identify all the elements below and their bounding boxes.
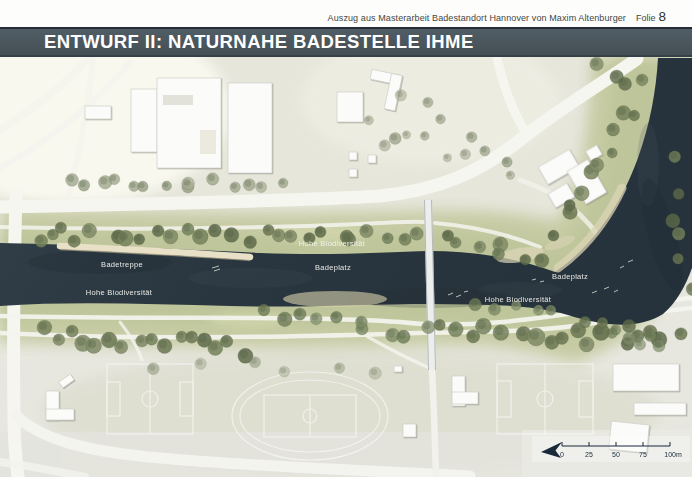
tree-shade — [412, 228, 419, 235]
tree-shade — [391, 134, 398, 141]
tree-shade — [468, 133, 474, 139]
map-annotation-label: Hohe Biodiversität — [86, 288, 153, 297]
header-bar: Auszug aus Masterarbeit Badestandort Han… — [0, 0, 692, 27]
map-annotation-label: Hohe Biodiversität — [485, 295, 552, 304]
source-note: Auszug aus Masterarbeit Badestandort Han… — [328, 13, 626, 23]
tree-shade — [646, 331, 653, 338]
tree-shade — [279, 179, 284, 184]
tree-shade — [424, 98, 430, 104]
tree-shade — [676, 329, 683, 336]
tree-shade — [608, 149, 614, 155]
map-wrap: Hohe BiodiversitätBadetreppeBadeplatzBad… — [0, 57, 692, 477]
tree-shade — [240, 350, 248, 358]
tree-shade — [116, 342, 123, 349]
tree-shade — [591, 160, 599, 168]
tree-shade — [624, 333, 631, 340]
title-bar: ENTWURF II: NATURNAHE BADESTELLE IHME — [0, 27, 692, 57]
tree-shade — [437, 115, 442, 120]
tree-shade — [274, 230, 281, 237]
tree-shade — [84, 225, 92, 233]
tree-shade — [435, 321, 441, 327]
tree-shade — [245, 180, 252, 187]
tree-shade — [67, 175, 74, 182]
tree-shade — [231, 183, 237, 189]
tree-shade — [503, 158, 509, 164]
tree-shade — [280, 367, 286, 373]
tree-shade — [88, 340, 97, 349]
tree-shade — [264, 226, 270, 232]
scale-bar-number: 100m — [664, 451, 682, 458]
tree-shade — [210, 226, 217, 233]
tree-shade — [572, 324, 580, 332]
tree-shade — [135, 235, 141, 241]
tree-shade — [332, 313, 339, 320]
tree-shade — [154, 226, 161, 233]
tree-shade — [208, 174, 215, 181]
tree-shade — [624, 321, 631, 328]
tree-shade — [444, 231, 450, 237]
tree-shade — [581, 318, 587, 324]
tree-shade — [475, 242, 481, 248]
tree-shade — [608, 125, 615, 132]
tree-shade — [495, 239, 503, 247]
tree-shade — [361, 226, 368, 233]
tree-shade — [507, 172, 512, 177]
tree-shade — [357, 317, 364, 324]
tree-shade — [183, 179, 190, 186]
tree-shade — [286, 231, 293, 238]
page-title: ENTWURF II: NATURNAHE BADESTELLE IHME — [0, 31, 474, 53]
tree-shade — [536, 255, 544, 263]
tree-shade — [139, 182, 145, 188]
scale-bar: 0255075100m — [532, 436, 690, 462]
tree-shade — [403, 132, 408, 137]
tree-shade — [529, 330, 539, 340]
tree-shade — [387, 330, 395, 338]
tree-shade — [468, 331, 475, 338]
tree-shade — [477, 320, 486, 329]
tree-shade — [451, 238, 457, 244]
tree-shade — [383, 234, 389, 240]
tree-shade — [450, 324, 458, 332]
scale-bar-number: 75 — [639, 451, 647, 458]
tree-shade — [637, 75, 644, 82]
tree-shade — [36, 236, 43, 243]
map-annotation-label: Badeplatz — [315, 263, 351, 272]
tree-shade — [226, 229, 234, 237]
tree-shade — [674, 229, 681, 236]
tree-shade — [518, 328, 526, 336]
tree-shade — [79, 181, 85, 187]
tree-shade — [400, 235, 407, 242]
tree-shade — [674, 255, 680, 261]
tree-shade — [630, 111, 636, 117]
tree-shade — [119, 232, 128, 241]
tree-shade — [654, 341, 661, 348]
tree-shade — [547, 306, 553, 312]
tree-shade — [470, 300, 477, 307]
tree-shade — [608, 329, 614, 335]
tree-shade — [103, 334, 112, 343]
tree-shade — [581, 339, 589, 347]
tree-shade — [481, 147, 487, 153]
tree-shade — [535, 306, 541, 312]
tree-shade — [77, 337, 86, 346]
tree-shade — [398, 332, 405, 339]
tree-shade — [565, 201, 571, 207]
tree-shade — [549, 231, 555, 237]
slide-page: Auszug aus Masterarbeit Badestandort Han… — [0, 0, 692, 477]
tree-shade — [591, 59, 598, 66]
tree-shade — [444, 155, 448, 159]
tree-shade — [196, 359, 202, 365]
map-annotation-label: Badetreppe — [101, 260, 143, 269]
scale-bar-number: 50 — [612, 451, 620, 458]
tree-shade — [421, 133, 426, 138]
tree-shade — [199, 335, 207, 343]
tree-shade — [670, 152, 677, 159]
tree-shade — [312, 314, 319, 321]
tree-shade — [110, 175, 116, 181]
tree-shade — [194, 231, 203, 240]
tree-shade — [69, 236, 76, 243]
tree-shade — [257, 183, 263, 189]
tree-shade — [149, 364, 156, 371]
tree-shade — [222, 336, 229, 343]
tree-shade — [620, 79, 627, 86]
tree-shade — [618, 107, 626, 115]
tree-shade — [130, 182, 136, 188]
site-plan-map: Hohe BiodiversitätBadetreppeBadeplatzBad… — [0, 57, 692, 477]
tree-shade — [557, 333, 564, 340]
slide-number: 8 — [658, 10, 666, 24]
tree-shade — [279, 314, 287, 322]
tree-shade — [54, 335, 61, 342]
map-annotation-label: Badeplatz — [552, 272, 588, 281]
tree-shade — [245, 237, 252, 244]
tree-shade — [259, 305, 266, 312]
tree-shade — [611, 72, 619, 80]
tree-shade — [598, 318, 604, 324]
tree-shade — [335, 364, 341, 370]
tree-shade — [495, 327, 504, 336]
tree-shade — [365, 117, 370, 122]
tree-shade — [67, 326, 74, 333]
tree-shade — [370, 368, 377, 375]
tree-shade — [295, 309, 302, 316]
tree-shade — [159, 340, 167, 348]
tree-shade — [165, 231, 173, 239]
tree-shade — [147, 335, 154, 342]
tree-shade — [316, 228, 322, 234]
tree-shade — [251, 358, 257, 364]
tree-shade — [461, 150, 467, 156]
tree-shade — [56, 223, 62, 229]
beach-center — [283, 291, 387, 307]
tree-shade — [183, 225, 190, 232]
tree-shade — [636, 340, 642, 346]
slide-label: Folie — [636, 13, 656, 23]
tree-shade — [49, 230, 55, 236]
scale-bar-number: 25 — [585, 451, 593, 458]
tree-shade — [39, 322, 47, 330]
tree-shade — [423, 322, 430, 329]
tree-shade — [576, 187, 584, 195]
scale-bar-number: 0 — [560, 451, 564, 458]
tree-shade — [163, 182, 168, 187]
map-annotation-label: Hohe Biodiversität — [299, 239, 366, 248]
tree-shade — [210, 342, 218, 350]
tree-shade — [521, 255, 527, 261]
tree-shade — [494, 249, 501, 256]
tree-shade — [137, 336, 144, 343]
tree-shade — [380, 141, 386, 147]
tree-shade — [490, 305, 497, 312]
tree-shade — [100, 177, 107, 184]
tree-shade — [187, 332, 194, 339]
tree-shade — [396, 91, 402, 97]
tree-shade — [667, 215, 675, 223]
tree-shade — [177, 332, 183, 338]
tree-shade — [546, 337, 554, 345]
tree-shade — [674, 190, 680, 196]
